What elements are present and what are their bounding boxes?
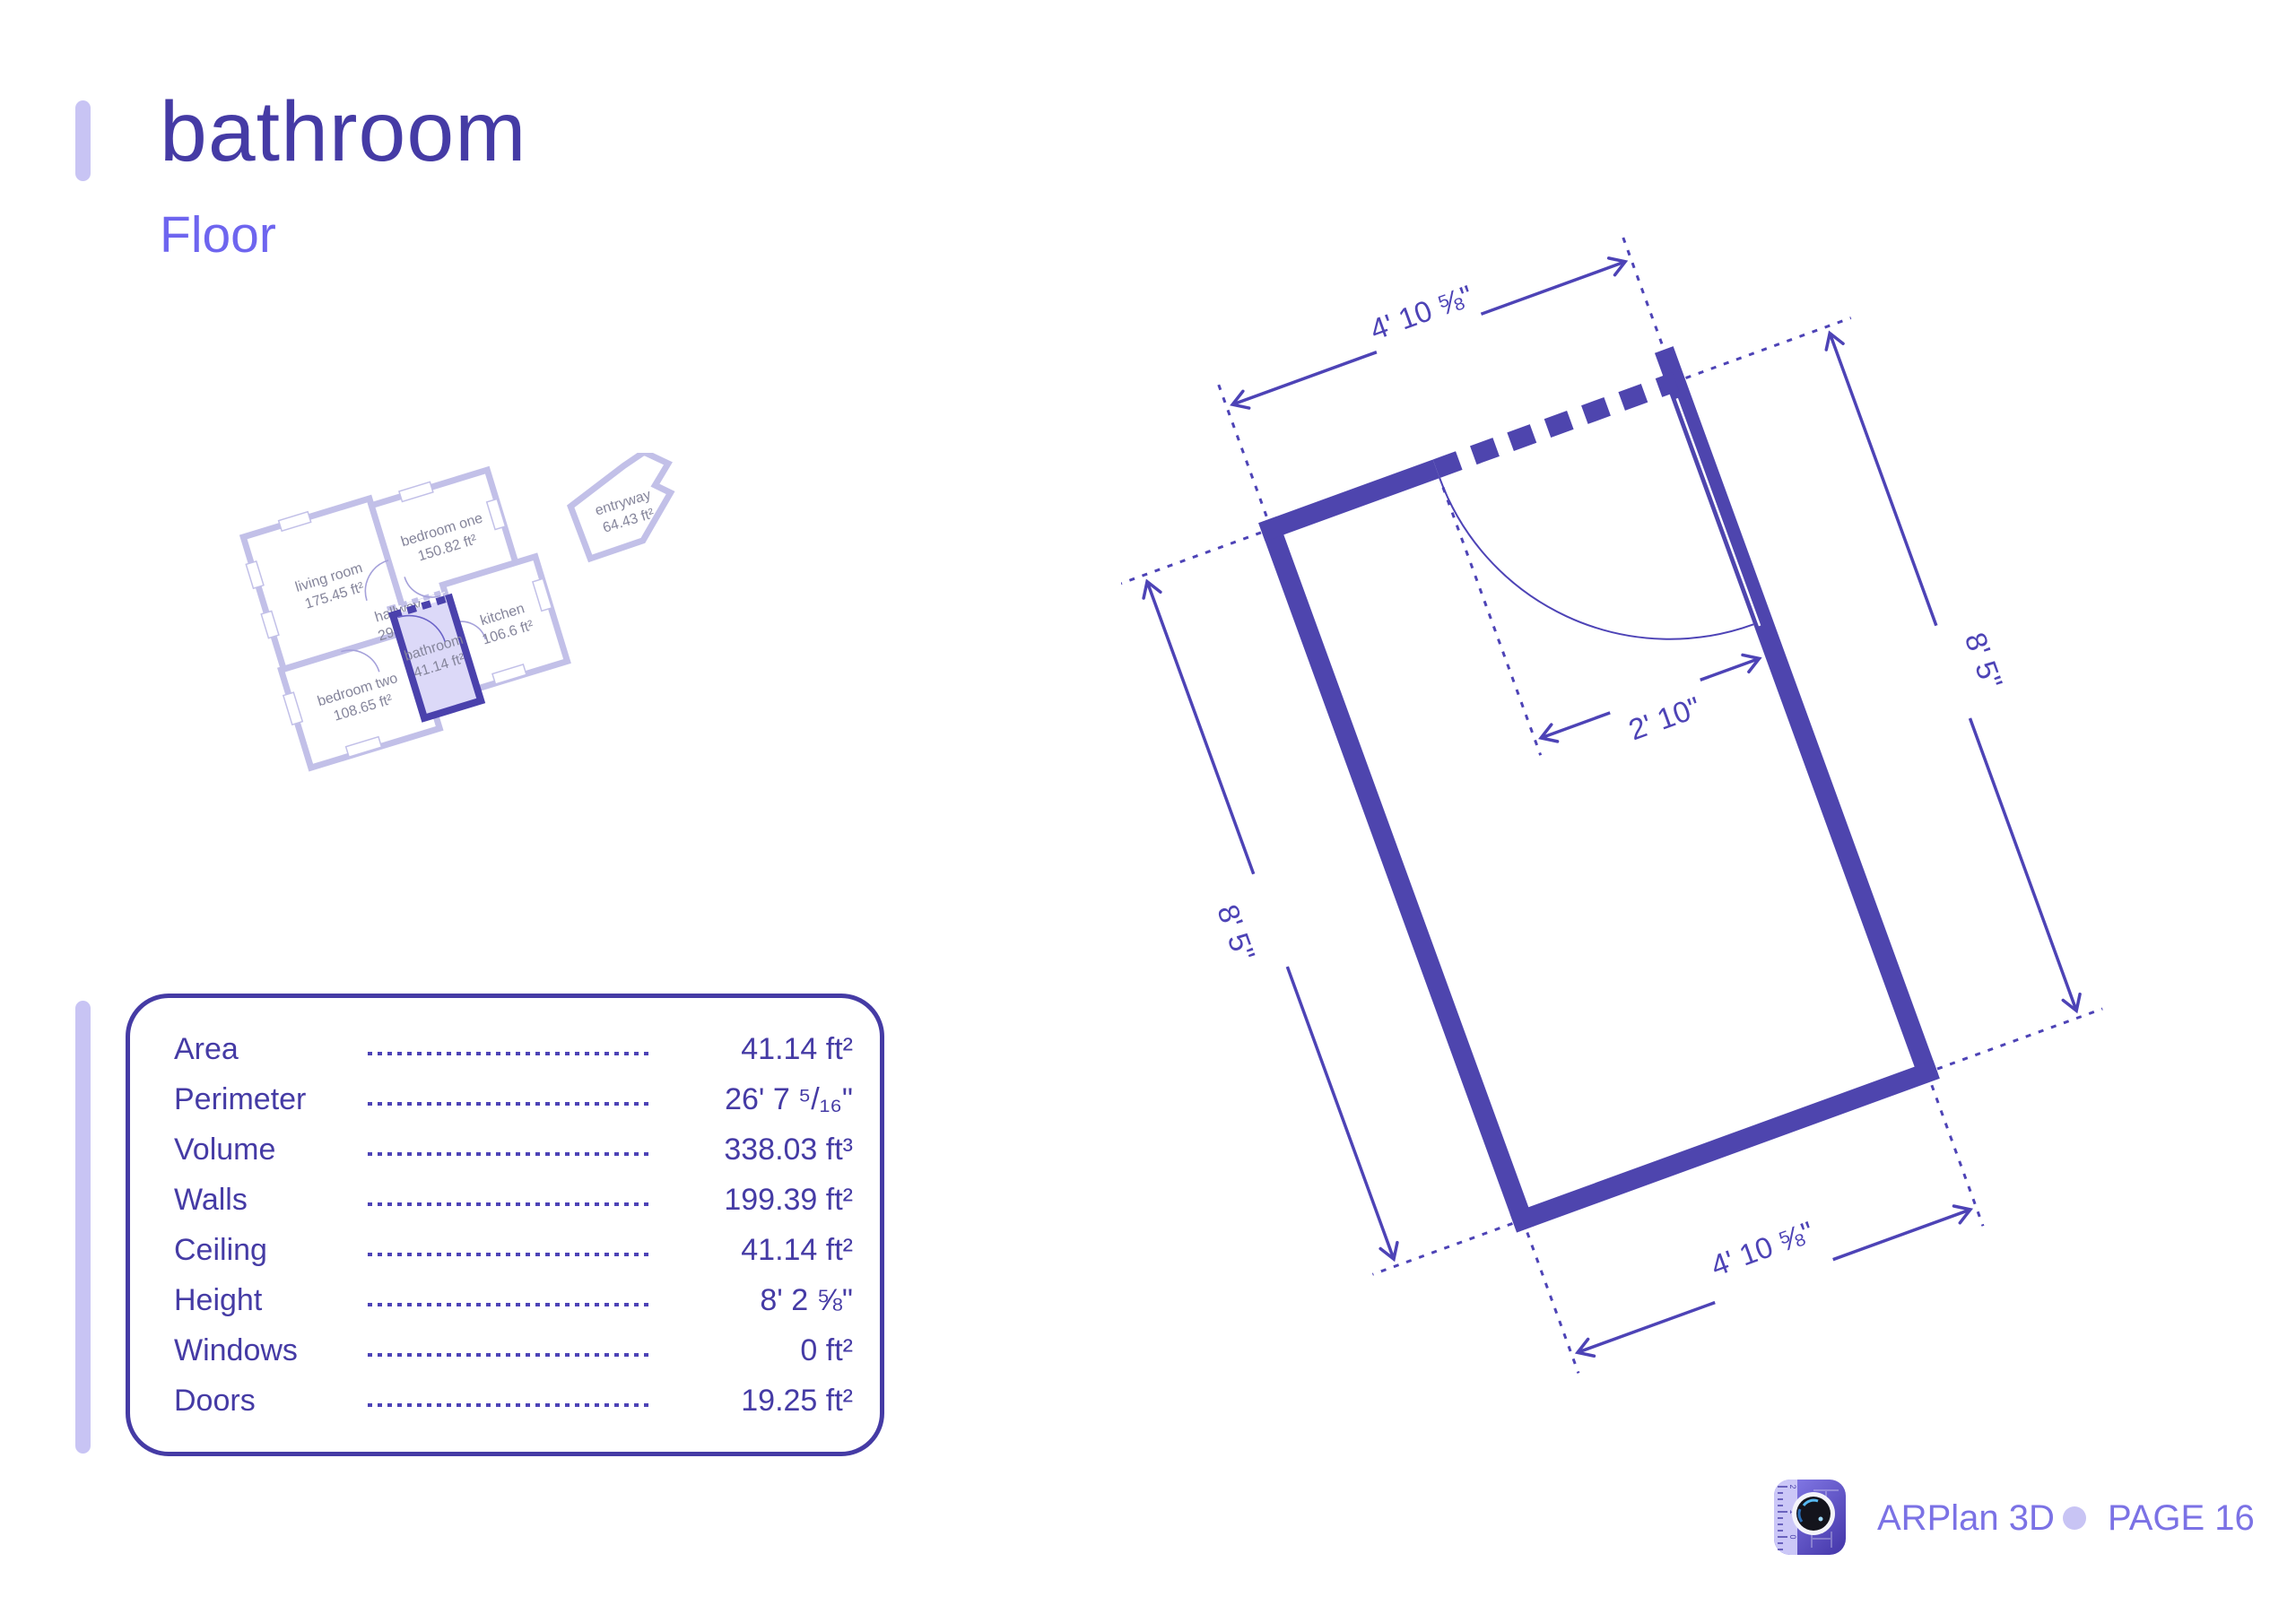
dimension-top: 4' 10 ⅝": [1366, 279, 1477, 346]
title-accent-bar: [75, 100, 91, 181]
door-leaf: [1677, 398, 1760, 626]
wall-top-solid: [1262, 469, 1437, 533]
floor-plan-report-page: bathroom Floor: [0, 0, 2296, 1623]
stat-row-windows: Windows 0 ft²: [174, 1326, 853, 1375]
icon-ruler-number-0: 0: [1788, 1534, 1797, 1539]
dotted-leader: [368, 1253, 650, 1256]
dimension-lines: [1121, 204, 2128, 1401]
stat-row-ceiling: Ceiling 41.14 ft²: [174, 1226, 853, 1274]
dotted-leader: [368, 1353, 650, 1357]
stat-label: Height: [174, 1283, 368, 1318]
stat-label: Ceiling: [174, 1233, 368, 1268]
dotted-leader: [368, 1403, 650, 1407]
extension-lines: [1121, 173, 2158, 1428]
page-subtitle: Floor: [160, 207, 276, 264]
stat-row-doors: Doors 19.25 ft²: [174, 1376, 853, 1425]
stats-accent-bar: [75, 1001, 91, 1454]
stat-label: Volume: [174, 1133, 368, 1167]
stat-row-walls: Walls 199.39 ft²: [174, 1176, 853, 1224]
stat-label: Perimeter: [174, 1082, 368, 1117]
icon-camera-lens: [1792, 1492, 1835, 1535]
wall-bottom: [1513, 1069, 1936, 1223]
stat-value: 8' 2 ⅝": [650, 1283, 853, 1318]
room-dimension-diagram: 4' 10 ⅝" 4' 10 ⅝" 8' 5" 8' 5" 2' 10": [1121, 90, 2296, 1533]
dotted-leader: [368, 1152, 650, 1156]
stat-row-area: Area 41.14 ft²: [174, 1025, 853, 1073]
stat-value: 199.39 ft²: [650, 1183, 853, 1218]
room-walls: [1250, 346, 1940, 1232]
dimension-left: 8' 5": [1211, 900, 1262, 966]
stat-label: Walls: [174, 1183, 368, 1218]
stat-value: 19.25 ft²: [650, 1384, 853, 1419]
stat-value: 338.03 ft³: [650, 1133, 853, 1167]
stat-row-height: Height 8' 2 ⅝": [174, 1276, 853, 1324]
stat-row-perimeter: Perimeter 26' 7 ⁵/₁₆": [174, 1075, 853, 1124]
dimension-bottom: 4' 10 ⅝": [1707, 1215, 1818, 1282]
icon-ruler-number-2: 2: [1788, 1484, 1797, 1488]
stat-row-volume: Volume 338.03 ft³: [174, 1125, 853, 1174]
stat-value: 0 ft²: [650, 1333, 853, 1368]
wall-right: [1664, 350, 1929, 1078]
footer-app-name: ARPlan 3D: [1877, 1497, 2055, 1539]
stat-value: 41.14 ft²: [650, 1233, 853, 1268]
page-title: bathroom: [160, 88, 526, 178]
footer-separator-dot: [2063, 1506, 2086, 1530]
dotted-leader: [368, 1102, 650, 1106]
wall-top-door-opening: [1436, 382, 1675, 469]
mini-floor-plan: hallway 29.67 ft² living room 175.45 ft²…: [238, 453, 740, 785]
stat-label: Doors: [174, 1384, 368, 1419]
stat-value: 26' 7 ⁵/₁₆": [650, 1082, 853, 1117]
dotted-leader: [368, 1052, 650, 1055]
footer-page-number: PAGE 16: [2108, 1497, 2255, 1539]
dimension-right: 8' 5": [1959, 629, 2010, 694]
dotted-leader: [368, 1303, 650, 1306]
arplan3d-app-icon: 2 1 0: [1774, 1480, 1846, 1555]
stats-panel: Area 41.14 ft² Perimeter 26' 7 ⁵/₁₆" Vol…: [126, 994, 884, 1456]
stat-label: Area: [174, 1032, 368, 1067]
dotted-leader: [368, 1202, 650, 1206]
stat-value: 41.14 ft²: [650, 1032, 853, 1067]
wall-left: [1267, 519, 1526, 1228]
dimension-door-width: 2' 10": [1624, 690, 1705, 747]
stat-label: Windows: [174, 1333, 368, 1368]
